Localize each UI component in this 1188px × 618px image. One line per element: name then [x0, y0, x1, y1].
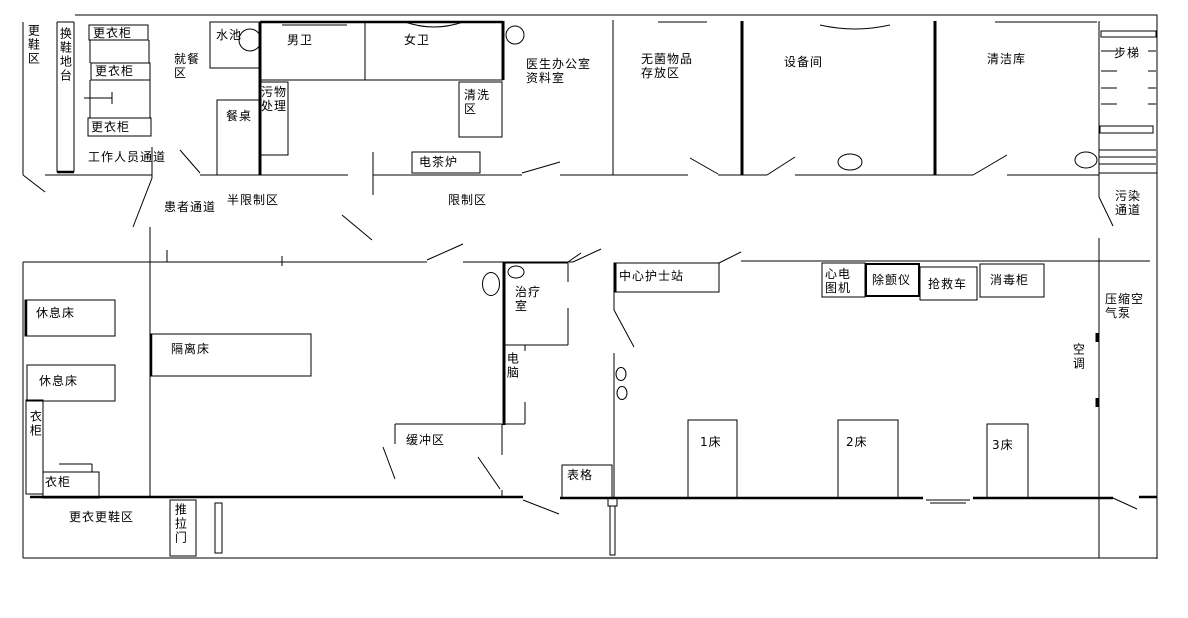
zone-label-restricted: 限制区 [448, 193, 487, 207]
equipment-label-disinfection-cabinet: 消毒柜 [990, 273, 1029, 287]
bed-label-1: 1床 [700, 435, 722, 449]
room-label-shoe-change-platform: 换鞋地台 [58, 27, 72, 83]
furniture-label-locker-1: 更衣柜 [93, 26, 132, 40]
equipment-label-ecg-machine: 心电 图机 [825, 267, 851, 296]
room-label-clean-storage: 清洁库 [987, 52, 1026, 66]
fixture-label-tea-boiler: 电茶炉 [419, 155, 458, 169]
room-label-doctor-office: 医生办公室 资料室 [526, 57, 591, 86]
equipment-label-compressed-air-pump: 压缩空 气泵 [1105, 292, 1144, 321]
furniture-label-forms: 表格 [567, 468, 593, 482]
furniture-label-wardrobe-tall: 衣柜 [28, 410, 42, 438]
room-label-mens-toilet: 男卫 [287, 33, 313, 47]
furniture-label-locker-2: 更衣柜 [95, 64, 134, 78]
bed-label-rest-2: 休息床 [39, 374, 78, 388]
zone-label-semi-restricted: 半限制区 [227, 193, 279, 207]
room-label-womens-toilet: 女卫 [404, 33, 430, 47]
bed-label-rest-1: 休息床 [36, 306, 75, 320]
room-label-treatment-room: 治疗 室 [515, 285, 541, 314]
door-label-sliding-door: 推拉门 [173, 503, 187, 545]
passage-label-contaminated: 污染 通道 [1115, 189, 1141, 218]
equipment-label-air-conditioner: 空调 [1071, 343, 1085, 371]
room-label-nurse-station: 中心护士站 [619, 269, 684, 283]
room-label-staircase: 步梯 [1114, 46, 1140, 60]
furniture-label-locker-3: 更衣柜 [91, 120, 130, 134]
room-label-equipment-room: 设备间 [784, 55, 823, 69]
furniture-label-dining-table: 餐桌 [226, 109, 252, 123]
bed-label-isolation: 隔离床 [171, 342, 210, 356]
equipment-label-defibrillator: 除颤仪 [872, 273, 911, 287]
room-label-sterile-storage: 无菌物品 存放区 [641, 52, 693, 81]
equipment-label-crash-cart: 抢救车 [928, 277, 967, 291]
furniture-label-wardrobe-low: 衣柜 [45, 475, 71, 489]
bed-label-2: 2床 [846, 435, 868, 449]
room-label-shoe-change-area: 更鞋区 [26, 24, 40, 66]
bed-label-3: 3床 [992, 438, 1014, 452]
passage-label-staff: 工作人员通道 [88, 150, 166, 164]
zone-label-buffer-area: 缓冲区 [406, 433, 445, 447]
room-label-dining-area: 就餐 区 [174, 52, 200, 81]
room-label-washing-area: 清洗 区 [464, 88, 490, 117]
zone-label-change-clothes-shoes: 更衣更鞋区 [69, 510, 134, 524]
passage-label-patient: 患者通道 [164, 200, 216, 214]
equipment-label-computer: 电脑 [505, 352, 519, 380]
fixture-label-sink: 水池 [216, 28, 242, 42]
floor-plan: 更鞋区 换鞋地台 更衣柜 更衣柜 更衣柜 就餐 区 水池 餐桌 污物 处理 男卫… [0, 0, 1188, 618]
room-label-waste-disposal: 污物 处理 [261, 85, 287, 114]
